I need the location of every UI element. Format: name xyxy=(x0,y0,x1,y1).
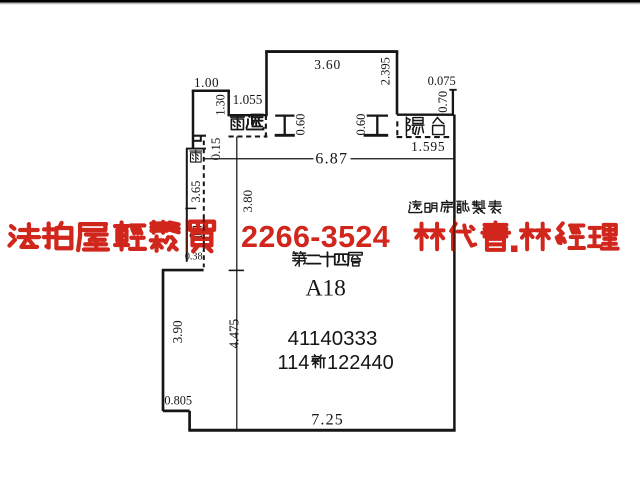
svg-text:122440: 122440 xyxy=(327,352,394,374)
svg-text:3.60: 3.60 xyxy=(314,57,341,72)
svg-text:3.80: 3.80 xyxy=(240,190,255,213)
svg-text:0.075: 0.075 xyxy=(428,74,456,88)
svg-text:1.00: 1.00 xyxy=(194,75,219,90)
svg-text:1.595: 1.595 xyxy=(411,139,445,154)
svg-text:0.805: 0.805 xyxy=(164,393,192,407)
svg-text:6.87: 6.87 xyxy=(315,150,348,167)
svg-text:1.30: 1.30 xyxy=(214,94,228,115)
svg-text:3.90: 3.90 xyxy=(170,320,185,343)
svg-text:0.15: 0.15 xyxy=(208,138,223,161)
svg-text:1.055: 1.055 xyxy=(233,92,263,107)
svg-text:114: 114 xyxy=(278,352,310,374)
svg-text:41140333: 41140333 xyxy=(288,327,378,350)
svg-text:A18: A18 xyxy=(305,276,345,302)
svg-text:3.65: 3.65 xyxy=(189,181,203,203)
svg-text:7.25: 7.25 xyxy=(311,412,344,429)
svg-text:0.70: 0.70 xyxy=(436,91,450,113)
svg-text:2.395: 2.395 xyxy=(379,57,393,85)
svg-text:4.475: 4.475 xyxy=(226,318,241,348)
svg-text:0.60: 0.60 xyxy=(354,114,368,136)
svg-text:0.60: 0.60 xyxy=(294,114,308,136)
svg-text:2266-3524: 2266-3524 xyxy=(241,220,390,254)
